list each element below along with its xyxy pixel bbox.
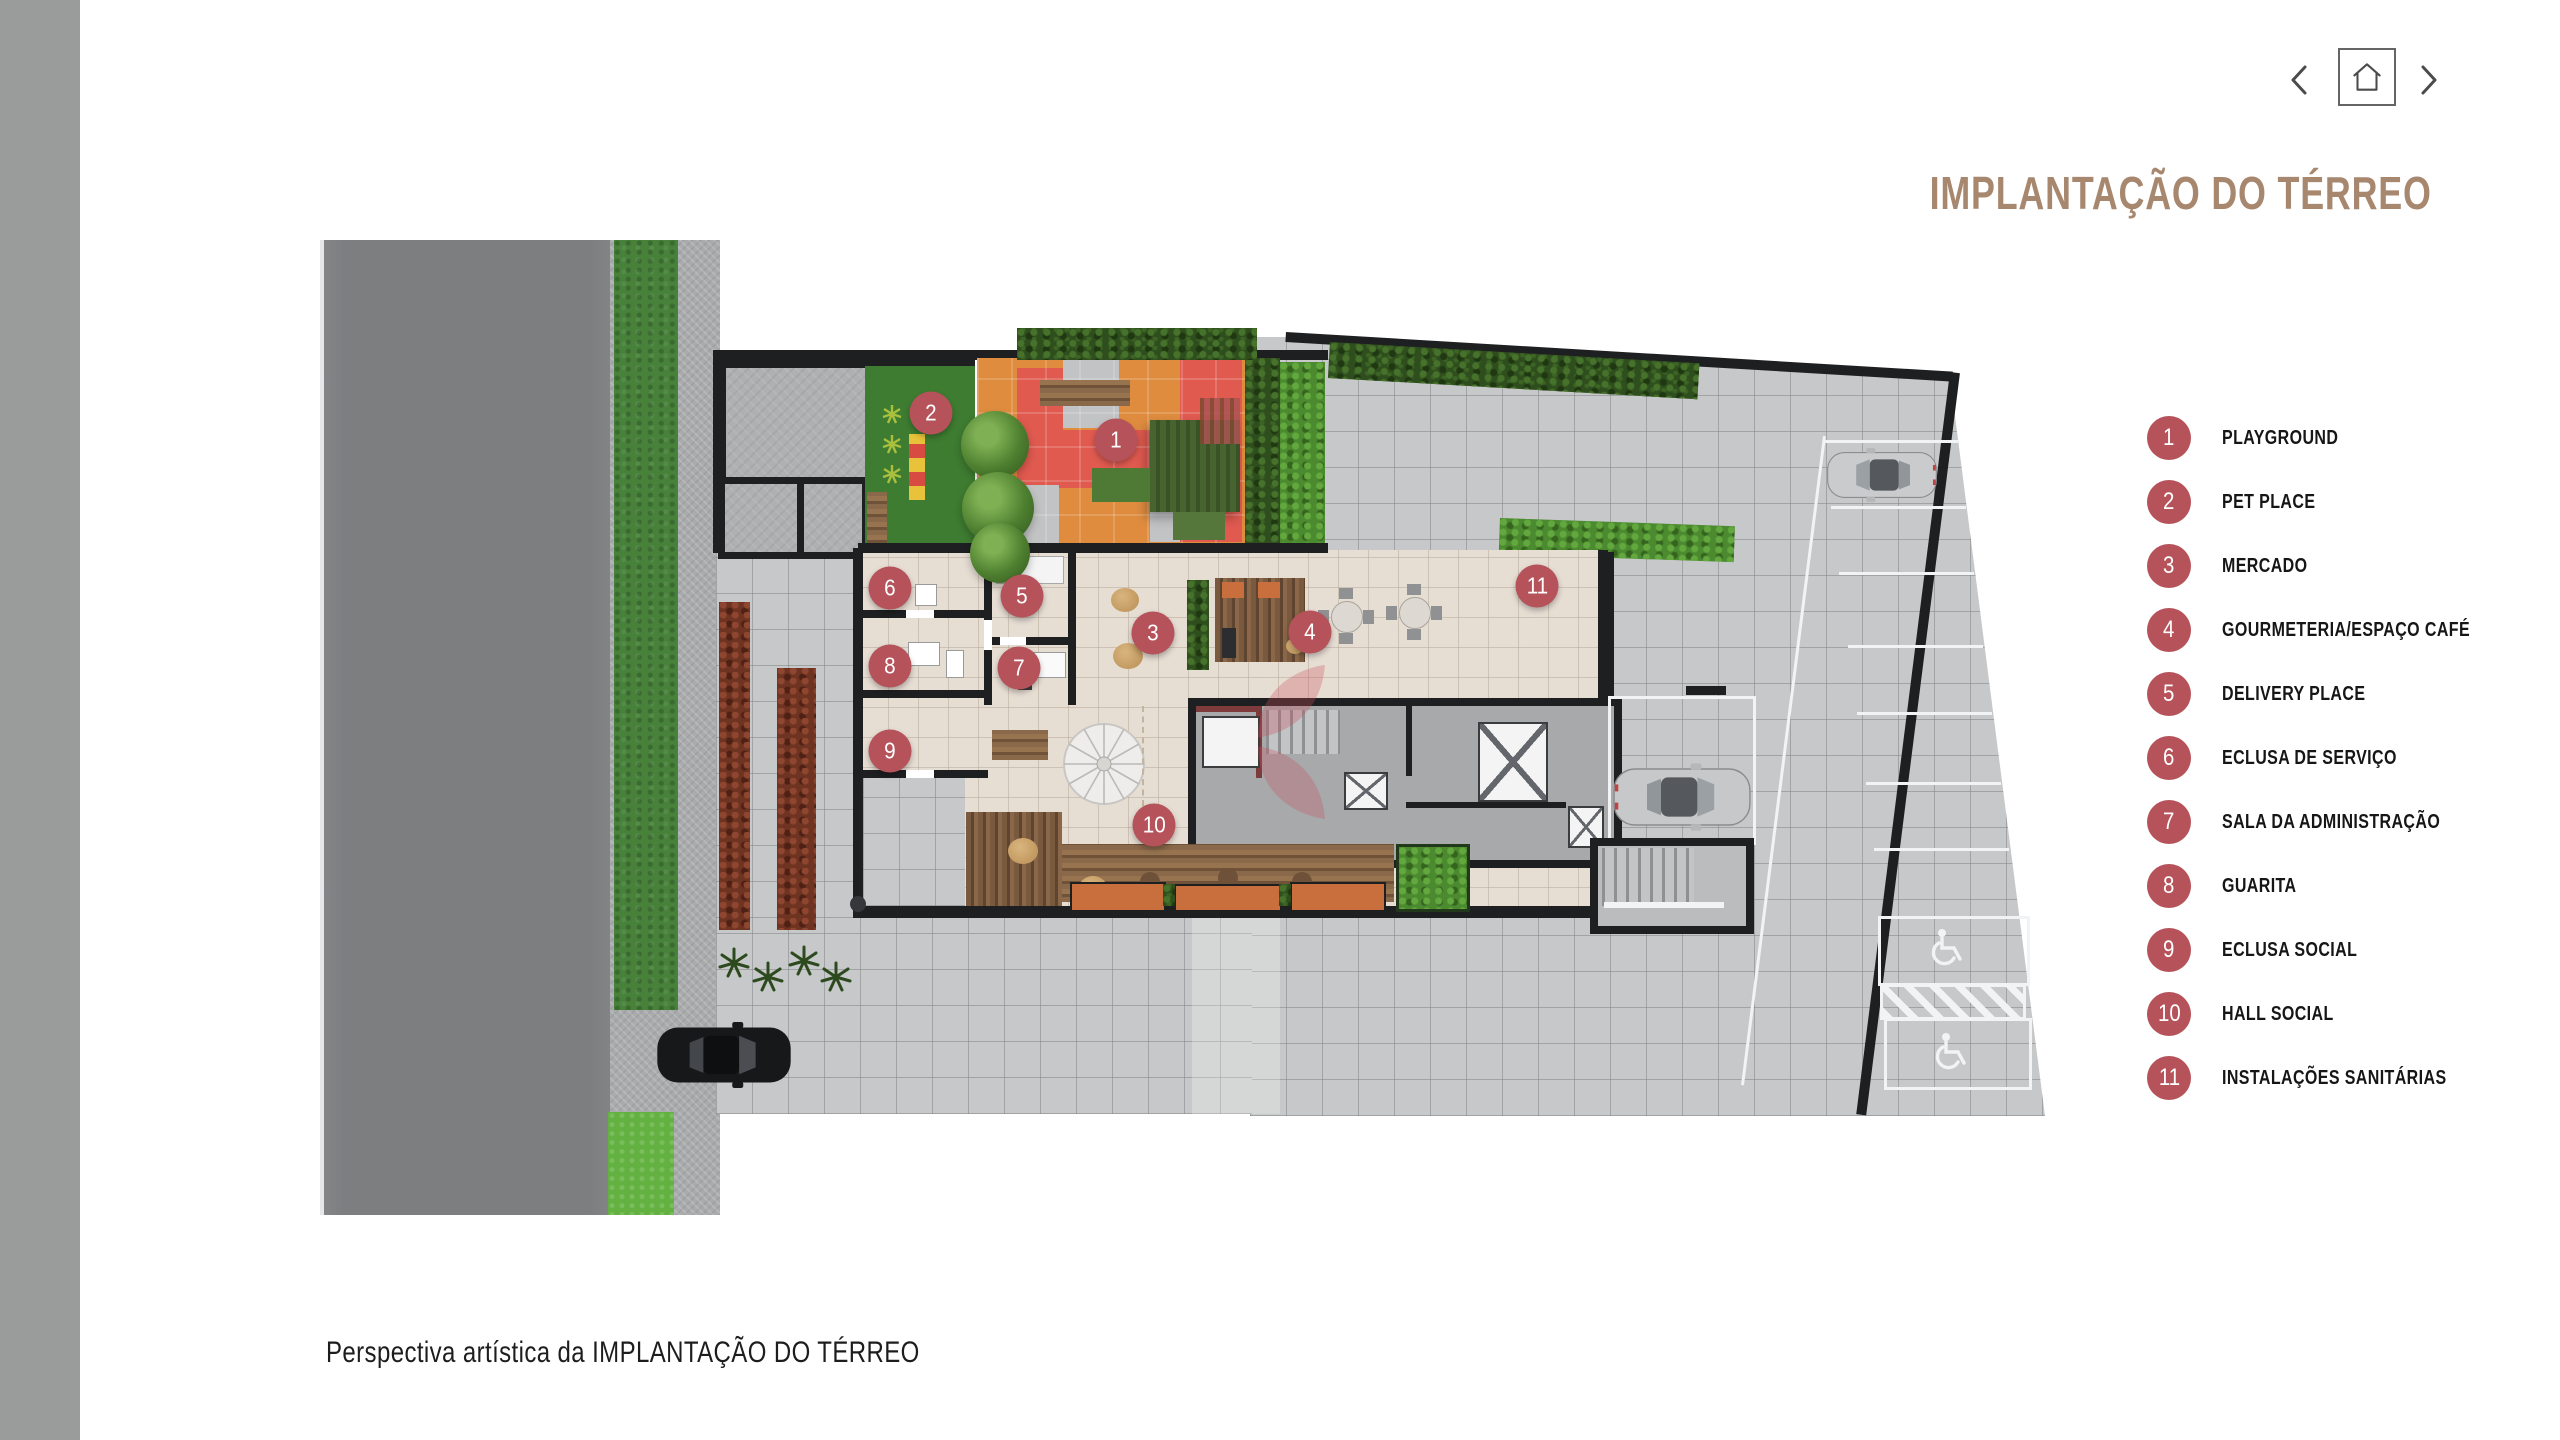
external-stair bbox=[1590, 838, 1754, 934]
door-gap bbox=[1000, 637, 1026, 645]
dining-chair bbox=[1407, 584, 1421, 595]
door-gap bbox=[906, 770, 934, 778]
orange-sofa bbox=[1070, 882, 1166, 912]
gourmeteria-chair bbox=[1222, 582, 1244, 598]
plan-marker-8: 8 bbox=[869, 645, 912, 688]
play-climb-frame bbox=[1200, 398, 1240, 444]
dining-chair bbox=[1339, 588, 1353, 599]
eclusa-box bbox=[915, 584, 937, 606]
street-road bbox=[320, 240, 612, 1215]
agave-plants bbox=[716, 935, 856, 1001]
hall-armchair bbox=[1008, 838, 1038, 864]
elevator-shaft-x bbox=[1478, 722, 1548, 802]
orange-sofa bbox=[1290, 882, 1386, 912]
sofa-plant bbox=[1279, 884, 1291, 906]
parking-divider bbox=[1839, 572, 1974, 575]
parking-divider bbox=[1866, 782, 2001, 785]
plan-marker-5: 5 bbox=[1001, 575, 1044, 618]
gate-bar bbox=[1686, 686, 1726, 695]
hedge-above-playground bbox=[1017, 328, 1257, 360]
plan-marker-2: 2 bbox=[910, 392, 953, 435]
parking-divider bbox=[1823, 440, 1958, 443]
plan-marker-7: 7 bbox=[998, 647, 1041, 690]
interior-recess bbox=[863, 778, 965, 906]
door-gap bbox=[984, 620, 992, 650]
interior-left-wall bbox=[853, 548, 863, 918]
interior-top-wall bbox=[858, 543, 1328, 553]
rooms-left-partition-h2 bbox=[858, 690, 988, 698]
bollard bbox=[850, 896, 866, 912]
stair-handrail bbox=[1604, 902, 1724, 908]
plan-marker-3: 3 bbox=[1132, 612, 1175, 655]
hall-console bbox=[992, 730, 1048, 760]
parking-divider bbox=[1857, 712, 1992, 715]
wheelchair-icon bbox=[1926, 926, 1970, 970]
wheelchair-icon bbox=[1930, 1030, 1974, 1074]
hall-dashed-boundary bbox=[1142, 706, 1144, 806]
dining-chair bbox=[1363, 610, 1374, 624]
gourmeteria-chair bbox=[1258, 582, 1280, 598]
dining-chair bbox=[1407, 629, 1421, 640]
playground-bench bbox=[1040, 380, 1130, 406]
dining-chair bbox=[1431, 606, 1442, 620]
mercado-pouf bbox=[1111, 588, 1139, 612]
watermark-logo bbox=[1244, 662, 1336, 822]
planter-row bbox=[719, 602, 750, 930]
accessible-hatch-zone bbox=[1880, 984, 2026, 1020]
entrance-walkway bbox=[1192, 918, 1280, 1114]
car-silver bbox=[1612, 762, 1752, 832]
core-partition bbox=[1406, 706, 1412, 776]
mercado-plant-divider bbox=[1187, 580, 1209, 670]
dining-chair bbox=[1386, 606, 1397, 620]
play-structure-small bbox=[1173, 512, 1225, 540]
plan-marker-6: 6 bbox=[869, 567, 912, 610]
street-curb-line bbox=[320, 240, 324, 1215]
elevator-shaft-x bbox=[1344, 772, 1388, 810]
pet-place bbox=[865, 358, 975, 558]
dining-table bbox=[1331, 601, 1363, 633]
pet-plant-icon bbox=[877, 402, 907, 486]
play-structure-slide bbox=[1092, 468, 1150, 502]
sofa-plant bbox=[1163, 884, 1175, 906]
car-silver bbox=[1826, 446, 1938, 504]
gourmeteria-counter bbox=[1222, 628, 1236, 658]
rooms-mid-partition-v bbox=[1068, 550, 1076, 705]
dining-chair bbox=[1339, 633, 1353, 644]
caption-text: Perspectiva artística da IMPLANTAÇÃO DO … bbox=[326, 1336, 920, 1370]
dining-set bbox=[1386, 584, 1442, 640]
hall-planter bbox=[1396, 844, 1470, 912]
pet-agility-beam bbox=[909, 434, 925, 500]
tree bbox=[961, 411, 1029, 479]
guarita-fixture bbox=[908, 642, 940, 666]
plan-marker-10: 10 bbox=[1133, 804, 1176, 847]
parking-divider bbox=[1848, 645, 1983, 648]
plan-marker-11: 11 bbox=[1516, 565, 1559, 608]
grass-strip bbox=[614, 240, 678, 1010]
plan-marker-9: 9 bbox=[869, 730, 912, 773]
parking-divider bbox=[1831, 506, 1966, 509]
storage-room-small-a bbox=[718, 477, 808, 559]
orange-sofa bbox=[1174, 884, 1282, 912]
plan-marker-1: 1 bbox=[1095, 419, 1138, 462]
pet-bench bbox=[867, 492, 887, 548]
grass-patch-bottom bbox=[608, 1112, 674, 1215]
parking-divider bbox=[1874, 848, 2009, 851]
door-gap bbox=[906, 610, 934, 618]
dining-table bbox=[1399, 597, 1431, 629]
car-black bbox=[636, 1022, 812, 1088]
site-plan: 1234567891011 bbox=[0, 0, 2560, 1440]
core-partition bbox=[1406, 802, 1566, 808]
planter-row bbox=[777, 668, 816, 930]
guarita-fixture bbox=[946, 650, 964, 678]
stair-treads bbox=[1602, 848, 1694, 906]
spiral-staircase bbox=[1062, 722, 1146, 806]
caption: Perspectiva artística da IMPLANTAÇÃO DO … bbox=[326, 1336, 1068, 1370]
page: IMPLANTAÇÃO DO TÉRREO 1PLAYGROUND2PET PL… bbox=[0, 0, 2560, 1440]
plan-marker-4: 4 bbox=[1289, 611, 1332, 654]
